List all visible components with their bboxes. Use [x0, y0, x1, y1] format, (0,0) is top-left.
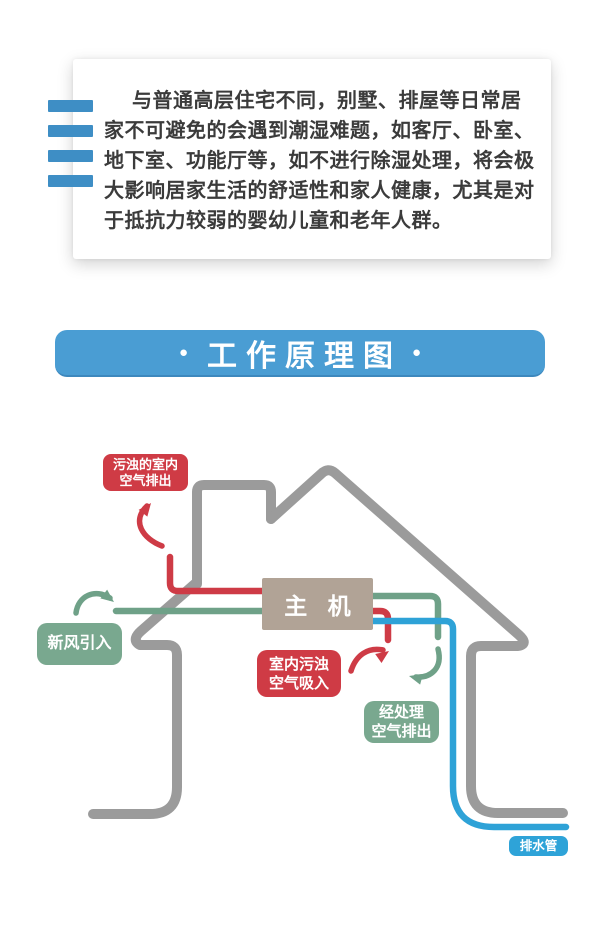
label-indoor-polluted-intake-line1: 室内污浊 [269, 655, 329, 674]
label-drain-pipe: 排水管 [509, 836, 568, 856]
label-fresh-air-intake: 新风引入 [37, 623, 122, 665]
intake-pipe-right [372, 611, 388, 640]
label-indoor-polluted-intake: 室内污浊 空气吸入 [257, 650, 341, 697]
label-drain-pipe-line1: 排水管 [520, 840, 558, 853]
exhaust-pipe-left [170, 557, 263, 591]
treated-out-arrowhead-icon [408, 671, 423, 685]
house-outline-right [271, 470, 563, 813]
label-indoor-polluted-intake-line2: 空气吸入 [269, 674, 329, 693]
main-unit-label: 主 机 [262, 578, 373, 630]
treated-out-arrow [416, 649, 439, 677]
house-chimney [197, 485, 271, 584]
label-polluted-air-exhaust: 污浊的室内 空气排出 [103, 454, 188, 491]
house-outline-left [93, 582, 197, 814]
label-treated-air-out: 经处理 空气排出 [364, 701, 439, 743]
label-fresh-air-intake-line1: 新风引入 [47, 635, 111, 653]
working-principle-diagram [0, 0, 600, 930]
label-polluted-air-exhaust-line1: 污浊的室内 [113, 457, 178, 473]
treated-air-pipe-right [372, 596, 438, 637]
label-polluted-air-exhaust-line2: 空气排出 [119, 473, 171, 489]
label-treated-air-out-line1: 经处理 [379, 703, 424, 722]
indoor-intake-arrow [351, 649, 383, 671]
label-treated-air-out-line2: 空气排出 [371, 722, 431, 741]
